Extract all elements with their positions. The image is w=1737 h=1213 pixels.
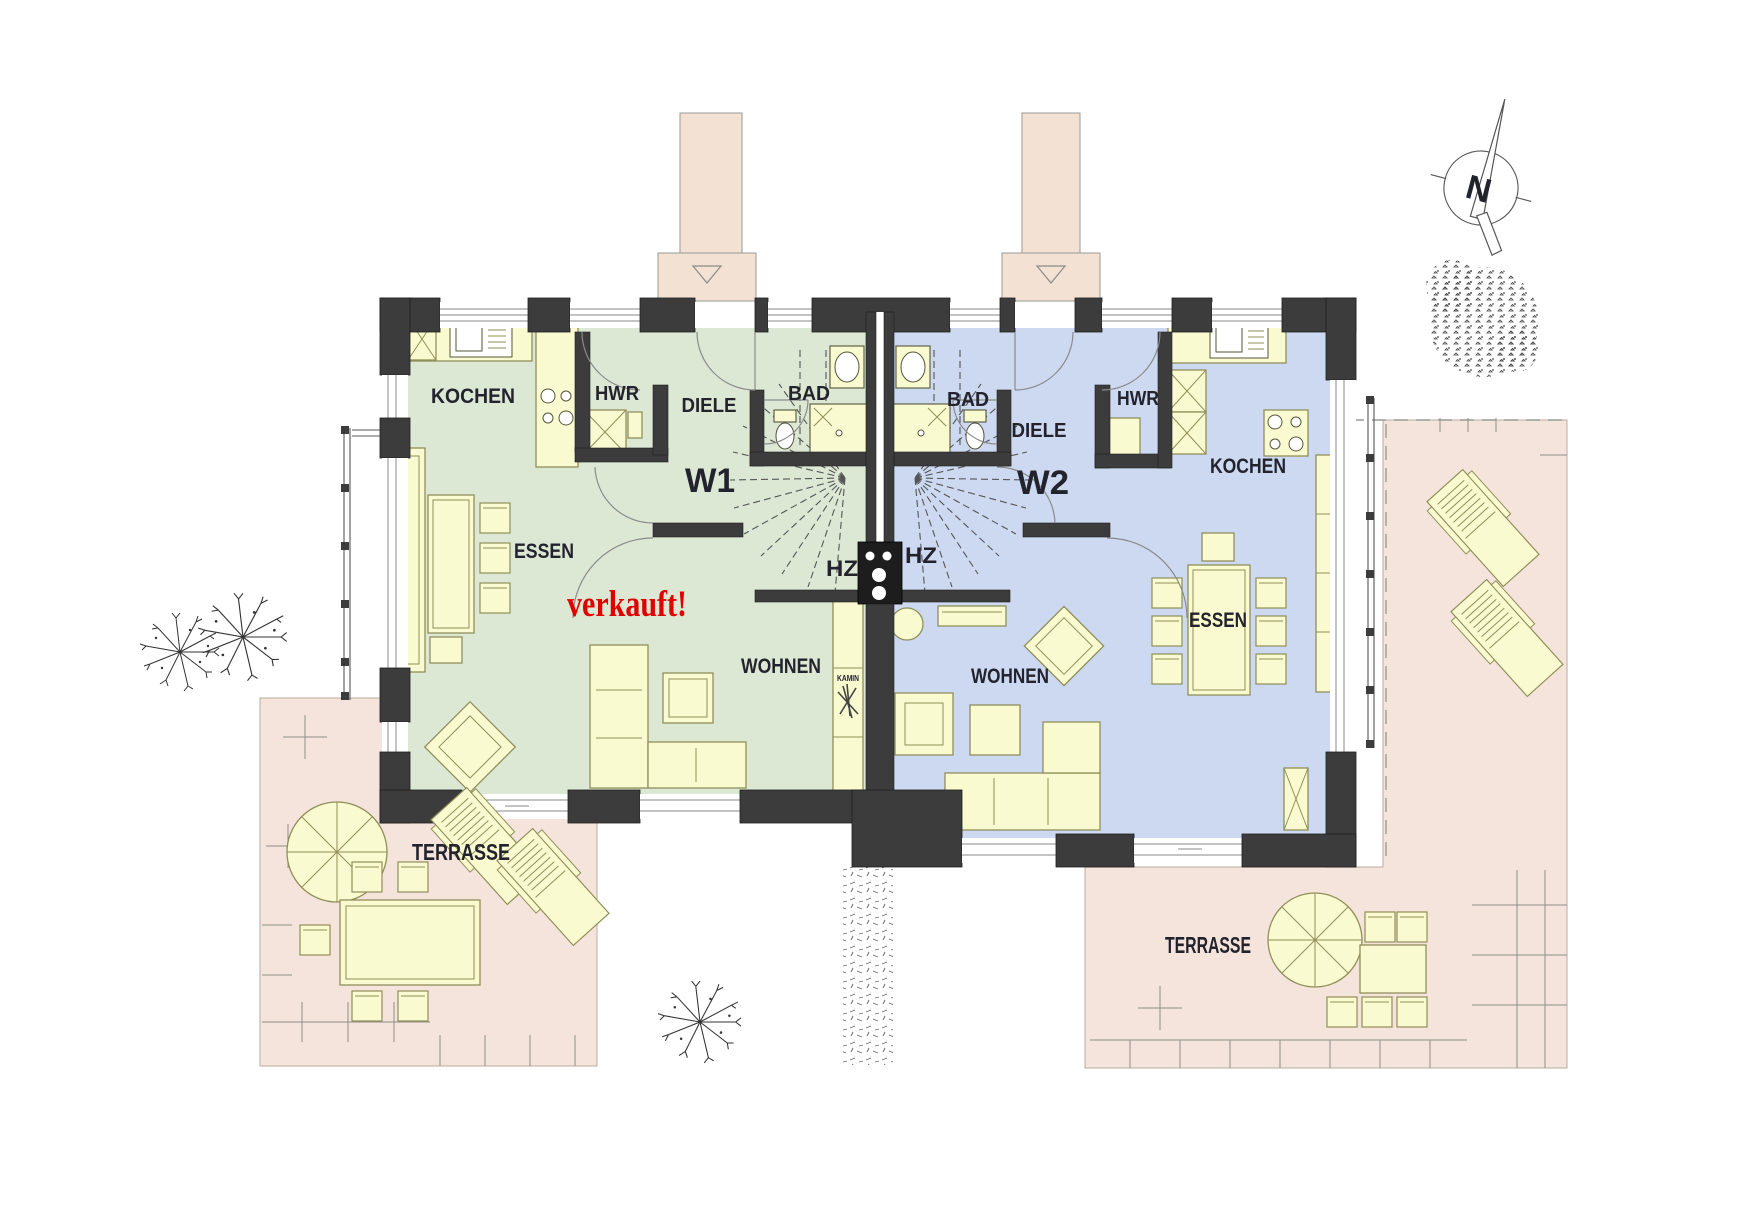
room-label-hwr-w2: HWR [1117, 388, 1159, 410]
room-label-essen-w2: ESSEN [1189, 609, 1247, 632]
room-label-bad-w2: BAD [947, 389, 989, 411]
kamin-cabinet [833, 600, 863, 795]
walkway-w1 [658, 113, 756, 301]
walkway-w2 [1002, 113, 1100, 301]
terrace-label-right: TERRASSE [1165, 932, 1251, 958]
room-label-wohnen-w1: WOHNEN [741, 655, 821, 678]
building [341, 298, 1374, 867]
room-label-kamin-w1: KAMIN [837, 674, 859, 683]
room-label-kochen-w1: KOCHEN [431, 385, 515, 408]
room-label-hwr-w1: HWR [595, 383, 640, 405]
room-label-diele-w1: DIELE [682, 395, 737, 417]
tree-stippled [1426, 260, 1539, 377]
status-label-verkauft: verkauft! [567, 584, 687, 625]
gravel-path [843, 865, 893, 1065]
floor-plan-canvas: N [0, 0, 1737, 1213]
railing-west [341, 426, 380, 700]
room-label-hz-w1: HZ [826, 556, 858, 581]
room-label-wohnen-w2: WOHNEN [971, 665, 1049, 688]
unit-label-w1: W1 [685, 462, 735, 500]
floor-plan-page: N [0, 0, 1737, 1213]
railing-east [1366, 396, 1374, 748]
parasol-right [1268, 893, 1362, 987]
tree-left-1 [140, 613, 219, 691]
unit-label-w2: W2 [1017, 464, 1069, 502]
room-label-kochen-w2: KOCHEN [1210, 455, 1286, 478]
tree-bottom [658, 981, 741, 1063]
room-label-hz-w2: HZ [905, 543, 937, 568]
terrace-label-left: TERRASSE [412, 839, 510, 865]
room-label-diele-w2: DIELE [1012, 420, 1067, 442]
north-label: N [1462, 168, 1496, 211]
north-arrow: N [1415, 86, 1555, 262]
room-label-essen-w1: ESSEN [514, 540, 574, 563]
room-label-bad-w1: BAD [788, 383, 830, 405]
